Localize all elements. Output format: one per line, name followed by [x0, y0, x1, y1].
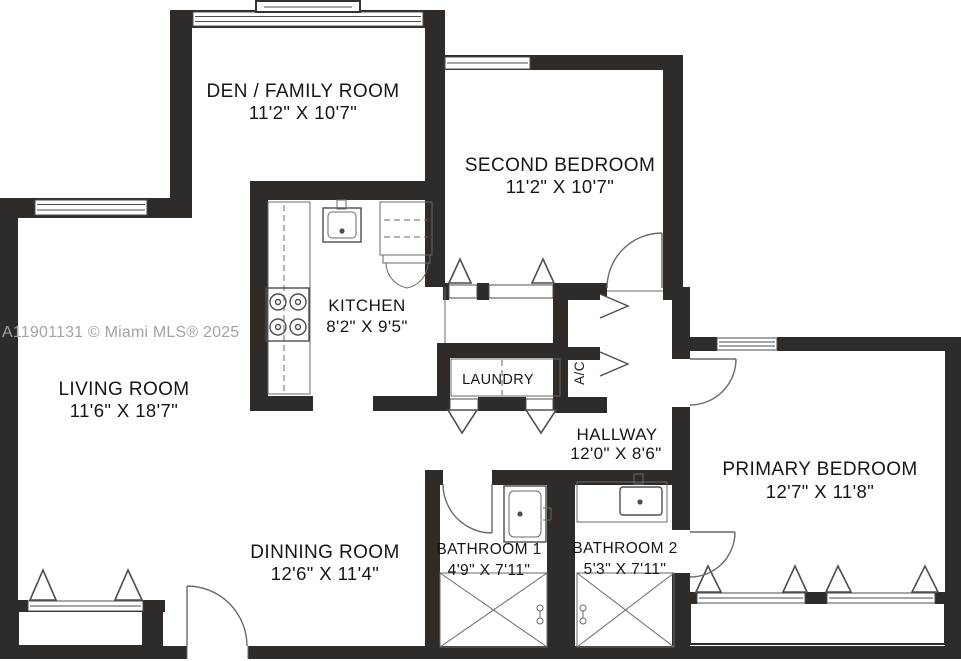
- windows: [28, 1, 935, 611]
- entry-door-arc: [187, 586, 247, 646]
- wall: [170, 10, 192, 218]
- wall: [250, 181, 268, 411]
- ac-bifold-chevron: [600, 352, 628, 376]
- wall: [443, 283, 449, 300]
- fridge-icon: [383, 255, 430, 263]
- bathroom1-dims: 4'9" X 7'11": [448, 562, 531, 579]
- bathroom1-door-arc: [443, 484, 492, 533]
- wall: [447, 343, 563, 358]
- kitchen-label: KITCHEN: [328, 296, 405, 315]
- mls-watermark: A11901131 © Miami MLS® 2025: [2, 324, 239, 341]
- hallway-label: HALLWAY: [577, 425, 658, 444]
- window-mark: [696, 566, 721, 592]
- living-room-dims: 11'6" X 18'7": [70, 400, 178, 421]
- balcony-living: [18, 611, 143, 646]
- linen-bifold-chevron: [600, 294, 628, 318]
- laundry-bifold-mark: [526, 410, 556, 433]
- kitchen-counter-left: [268, 202, 310, 394]
- wall: [672, 287, 690, 359]
- wall: [777, 337, 961, 351]
- window-mark: [30, 570, 56, 600]
- den-dims: 11'2" X 10'7": [249, 102, 357, 123]
- window-den-left: [35, 200, 147, 215]
- wall: [250, 396, 313, 411]
- wall: [477, 283, 489, 300]
- window-den-top: [193, 12, 423, 26]
- window-mark: [826, 566, 851, 592]
- wall: [248, 646, 961, 659]
- window-primary-top: [717, 338, 777, 350]
- primary-bedroom-label: PRIMARY BEDROOM: [722, 459, 917, 480]
- laundry-bifold-mark: [448, 410, 477, 433]
- wall: [553, 283, 607, 300]
- bathroom1-label: BATHROOM 1: [436, 541, 541, 558]
- ac-label: A/C: [572, 361, 587, 385]
- second-bedroom-door-arc: [607, 233, 662, 288]
- laundry-label: LAUNDRY: [462, 372, 534, 388]
- second-bedroom-dims: 11'2" X 10'7": [506, 176, 614, 197]
- laundry-door-band-2: [526, 399, 553, 410]
- primary-door-arc: [690, 359, 736, 405]
- wall: [492, 470, 690, 485]
- closet-door-band-2: [489, 285, 553, 298]
- bathroom2-label: BATHROOM 2: [572, 540, 677, 557]
- wall: [553, 347, 600, 360]
- closet-bifold-mark: [449, 259, 471, 283]
- window-mark: [783, 566, 807, 592]
- bathroom2-shower-icon: [577, 573, 674, 647]
- kitchen-counter-right: [380, 202, 432, 255]
- wall: [250, 181, 445, 200]
- closet-door-band-1: [449, 285, 477, 298]
- hallway-dims: 12'0" X 8'6": [570, 444, 661, 463]
- den-label: DEN / FAMILY ROOM: [207, 81, 400, 102]
- wall: [478, 397, 526, 411]
- wall: [663, 55, 683, 300]
- kitchen-sink-icon: [323, 200, 361, 242]
- wall: [690, 337, 717, 351]
- bathroom1-shower-icon: [440, 573, 547, 647]
- wall: [0, 646, 187, 659]
- wall: [672, 573, 690, 655]
- wall: [672, 407, 690, 530]
- closet-bifold-mark: [532, 259, 554, 283]
- bathroom2-dims: 5'3" X 7'11": [584, 561, 667, 578]
- window-mark: [912, 566, 938, 592]
- dining-room-label: DINNING ROOM: [250, 542, 399, 563]
- wall: [547, 470, 575, 655]
- wall: [143, 600, 163, 646]
- kitchen-dims: 8'2" X 9'5": [326, 317, 408, 336]
- bathroom1-sink-icon: [504, 486, 551, 542]
- wall: [425, 10, 445, 287]
- wall: [0, 198, 18, 655]
- primary-bedroom-dims: 12'7" X 11'8": [766, 481, 874, 502]
- floor-plan: DEN / FAMILY ROOM 11'2" X 10'7" SECOND B…: [0, 0, 961, 661]
- wall: [425, 470, 440, 655]
- stove-icon: [266, 288, 309, 341]
- laundry-door-band-1: [450, 399, 478, 410]
- window-mark: [115, 570, 142, 600]
- wall: [945, 337, 961, 655]
- floor-plan-page: DEN / FAMILY ROOM 11'2" X 10'7" SECOND B…: [0, 0, 961, 661]
- bathroom2-door-arc: [690, 532, 735, 577]
- living-room-label: LIVING ROOM: [58, 379, 189, 400]
- wall: [596, 400, 607, 413]
- dining-room-dims: 12'6" X 11'4": [271, 563, 379, 584]
- balcony-primary: [690, 602, 945, 644]
- second-bedroom-label: SECOND BEDROOM: [465, 155, 655, 176]
